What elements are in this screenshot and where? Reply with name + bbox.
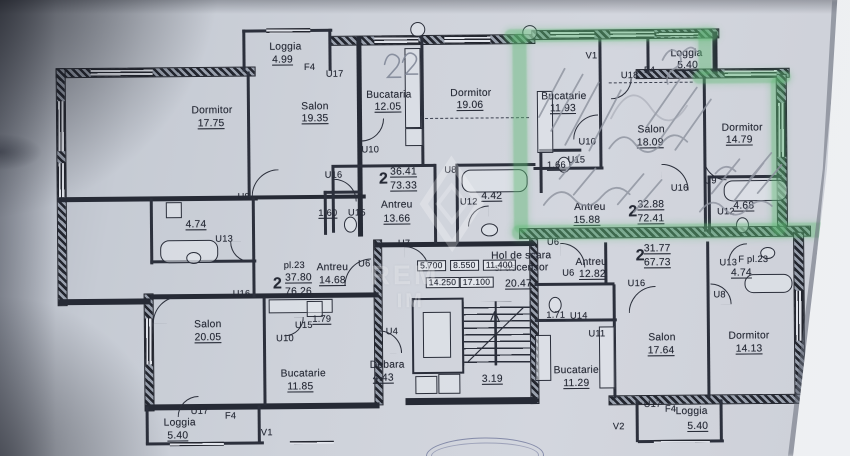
loggia-bl-area: 5.40 <box>167 430 188 441</box>
wall <box>636 400 639 442</box>
dormitor-br-name: Dormitor <box>728 330 769 342</box>
highlight-marker <box>512 222 850 240</box>
wall <box>405 397 537 405</box>
door-arc <box>629 286 656 313</box>
vent-circle <box>410 22 425 37</box>
door-u6-br: U6 <box>562 268 574 278</box>
door-u4-core: U4 <box>386 326 398 336</box>
bucatarie-br-area: 11.29 <box>563 378 589 390</box>
salon-br-area: 17.64 <box>648 345 675 357</box>
antreu-br-name: Antreu <box>575 257 607 269</box>
wall <box>703 78 707 232</box>
wall <box>598 38 602 168</box>
door-arc <box>153 296 180 323</box>
highlight-marker <box>698 29 711 75</box>
loggia-bl-name: Loggia <box>164 417 196 429</box>
apt-tm-total: 73.33 <box>390 180 417 192</box>
wall <box>720 399 723 441</box>
salon-bl-name: Salon <box>194 319 221 331</box>
salon-bl-area: 20.05 <box>195 332 222 344</box>
bucatarie-g-area: 11.93 <box>550 103 576 115</box>
wc-br-area: 1.71 <box>546 310 565 320</box>
apt-g-rooms: 2 <box>628 203 637 221</box>
antreu-br-area: 12.82 <box>579 269 606 281</box>
dormitor-g-name: Dormitor <box>722 122 763 134</box>
door-u16-br: U16 <box>628 278 646 288</box>
elevator-cab <box>423 312 451 358</box>
antreu-left-name: Antreu <box>317 262 349 274</box>
bucataria-tm-name: Bucataria <box>366 89 411 101</box>
loggia-g-area: 5.40 <box>677 60 698 71</box>
door-u15-tl: U15 <box>348 207 366 217</box>
kitchen-stove <box>405 128 423 146</box>
window <box>170 442 224 446</box>
debara-area: 4.43 <box>373 373 394 384</box>
window <box>145 318 153 364</box>
debara-name: Debara <box>370 360 405 372</box>
loggia-br-area: 5.40 <box>687 421 708 432</box>
door-u10-g: U10 <box>578 136 596 146</box>
door-u11-br: U11 <box>588 328 605 338</box>
bucatarie-g-name: Bucatarie <box>541 91 586 103</box>
level-1: 5.700 <box>417 260 446 272</box>
window <box>91 68 153 77</box>
wall <box>146 406 149 444</box>
level-2: 8.550 <box>450 260 479 272</box>
window <box>57 101 65 151</box>
level-3: 11.400 <box>483 259 516 271</box>
bath-g-area: 4.68 <box>733 200 754 211</box>
loggia-br-name: Loggia <box>676 406 708 418</box>
loggia-tl-area: 4.99 <box>272 54 293 65</box>
apt-left-total: 76.26 <box>285 286 312 298</box>
wall <box>455 164 459 246</box>
salon-g-area: 18.09 <box>637 137 664 149</box>
sink <box>481 223 498 236</box>
wall <box>433 164 437 244</box>
door-u17-bl: U17 <box>191 406 209 416</box>
door-u17-br: U17 <box>644 399 662 409</box>
door-u16-tl: U16 <box>325 170 343 180</box>
door-u16-g: U16 <box>671 183 689 193</box>
door-u12-tm: U12 <box>460 196 478 206</box>
loggia-tl-name: Loggia <box>269 41 301 53</box>
highlight-marker <box>504 27 718 42</box>
highlight-marker <box>771 77 786 235</box>
door-u10-left: U10 <box>276 333 294 343</box>
vent-v2-br: V2 <box>613 421 625 431</box>
wall <box>706 242 710 398</box>
window <box>266 28 310 33</box>
door-u13-br: U13 <box>719 257 737 267</box>
storage-box <box>415 376 437 394</box>
apt-br-total: 67.73 <box>644 257 671 269</box>
window <box>290 441 334 444</box>
apt-left-living: 37.80 <box>285 272 312 284</box>
partial-ink-stamp <box>426 437 544 456</box>
kitchen-counter <box>535 335 551 381</box>
bucatarie-bl-name: Bucatarie <box>281 368 326 380</box>
dashed-guide-line <box>609 82 693 84</box>
door-u17-tl: U17 <box>326 69 344 79</box>
wall <box>247 72 251 198</box>
dormitor-br-area: 14.13 <box>736 343 763 355</box>
apt-tm-rooms: 2 <box>379 171 388 189</box>
wall <box>59 298 151 305</box>
vent-v1-bl: V1 <box>261 427 273 437</box>
bucatarie-bl-area: 11.85 <box>287 381 313 393</box>
scanned-floorplan-photo: REM IM Dormitor17.75Loggia4.99F4U17Salon… <box>0 0 850 456</box>
dormitor-tl-name: Dormitor <box>191 105 232 117</box>
antreu-g-name: Antreu <box>574 202 606 214</box>
vent-v1-g: V1 <box>586 50 598 60</box>
door-f4-g: F4 <box>644 65 655 75</box>
door-u15-g: U15 <box>568 154 586 164</box>
level-5: 17.100 <box>460 277 494 289</box>
apt-tm-living: 36.41 <box>390 166 417 178</box>
window <box>374 36 418 44</box>
salon-tl-name: Salon <box>301 101 328 113</box>
wall <box>328 29 331 71</box>
antreu-tm-name: Antreu <box>381 199 413 211</box>
door-arc <box>361 118 384 141</box>
kitchen-counter <box>404 48 421 128</box>
bath-br-plan: F pl.23 <box>738 254 768 264</box>
dormitor-tl-area: 17.75 <box>198 118 225 130</box>
wall <box>57 67 255 77</box>
door-u13-left: U13 <box>215 234 233 244</box>
wall <box>258 405 261 443</box>
door-u8-tl: U8 <box>238 191 250 201</box>
bath-br-area: 4.74 <box>731 267 752 278</box>
antreu-left-area: 14.68 <box>319 275 346 287</box>
level-4: 14.250 <box>426 277 460 289</box>
wc-tl-area: 1.60 <box>318 208 337 218</box>
door-u16-bl: U16 <box>233 288 251 298</box>
highlight-marker <box>512 33 528 233</box>
apt-left-plan: pl.23 <box>284 260 305 270</box>
dormitor-g-area: 14.79 <box>726 134 753 146</box>
door-u8-tm: U8 <box>444 165 456 175</box>
apt-left-rooms: 2 <box>273 275 282 293</box>
salon-br-name: Salon <box>648 332 675 344</box>
storage-box <box>438 374 460 394</box>
door-f4-tl: F4 <box>304 62 315 72</box>
wc-left-area: 1.79 <box>312 314 331 324</box>
door-u7-core: U7 <box>398 238 410 248</box>
door-u6-left: U6 <box>358 258 370 268</box>
salon-tl-area: 19.35 <box>302 113 329 125</box>
bath-tm-area: 4.42 <box>481 191 502 202</box>
door-f4-bl: F4 <box>225 411 236 421</box>
bucatarie-br-name: Bucatarie <box>554 365 599 377</box>
bath-left-area: 4.74 <box>185 219 206 230</box>
salon-g-name: Salon <box>637 124 664 136</box>
door-u8-br: U8 <box>713 289 725 299</box>
door-u12-g: U12 <box>717 206 735 216</box>
hall-area: 20.47 <box>505 278 532 290</box>
wall <box>534 282 614 286</box>
kitchen-counter <box>269 299 333 314</box>
dormitor-tm-name: Dormitor <box>450 88 491 100</box>
stair-area: 3.19 <box>482 374 503 385</box>
wall <box>420 36 424 166</box>
window <box>795 291 804 341</box>
wall <box>539 149 542 193</box>
antreu-tm-area: 13.66 <box>383 213 410 225</box>
door-u9-g: U9 <box>704 175 716 185</box>
wall <box>242 30 245 72</box>
wc-g-area: 1.66 <box>547 160 566 170</box>
blueprint-sheet: REM IM Dormitor17.75Loggia4.99F4U17Salon… <box>0 0 850 456</box>
wall <box>263 297 267 405</box>
door-u10-tl: U10 <box>361 144 379 154</box>
apt-br-living: 31.77 <box>644 243 671 255</box>
washing-machine <box>166 202 182 218</box>
window <box>57 163 65 197</box>
door-u14-br: U14 <box>570 310 588 320</box>
wall <box>58 195 258 202</box>
wall <box>150 198 154 264</box>
sink <box>186 252 201 264</box>
apt-g-living: 32.88 <box>637 199 664 211</box>
bucataria-tm-area: 12.05 <box>375 102 402 114</box>
wall <box>252 197 256 297</box>
door-u18-g: U18 <box>621 70 639 80</box>
toilet <box>344 217 357 233</box>
window <box>444 35 490 43</box>
wall <box>331 164 435 168</box>
door-arc <box>251 169 278 196</box>
dormitor-tm-area: 19.06 <box>456 100 483 112</box>
door-arc <box>334 179 357 202</box>
window <box>654 440 710 443</box>
door-u15-left: U15 <box>295 320 313 330</box>
